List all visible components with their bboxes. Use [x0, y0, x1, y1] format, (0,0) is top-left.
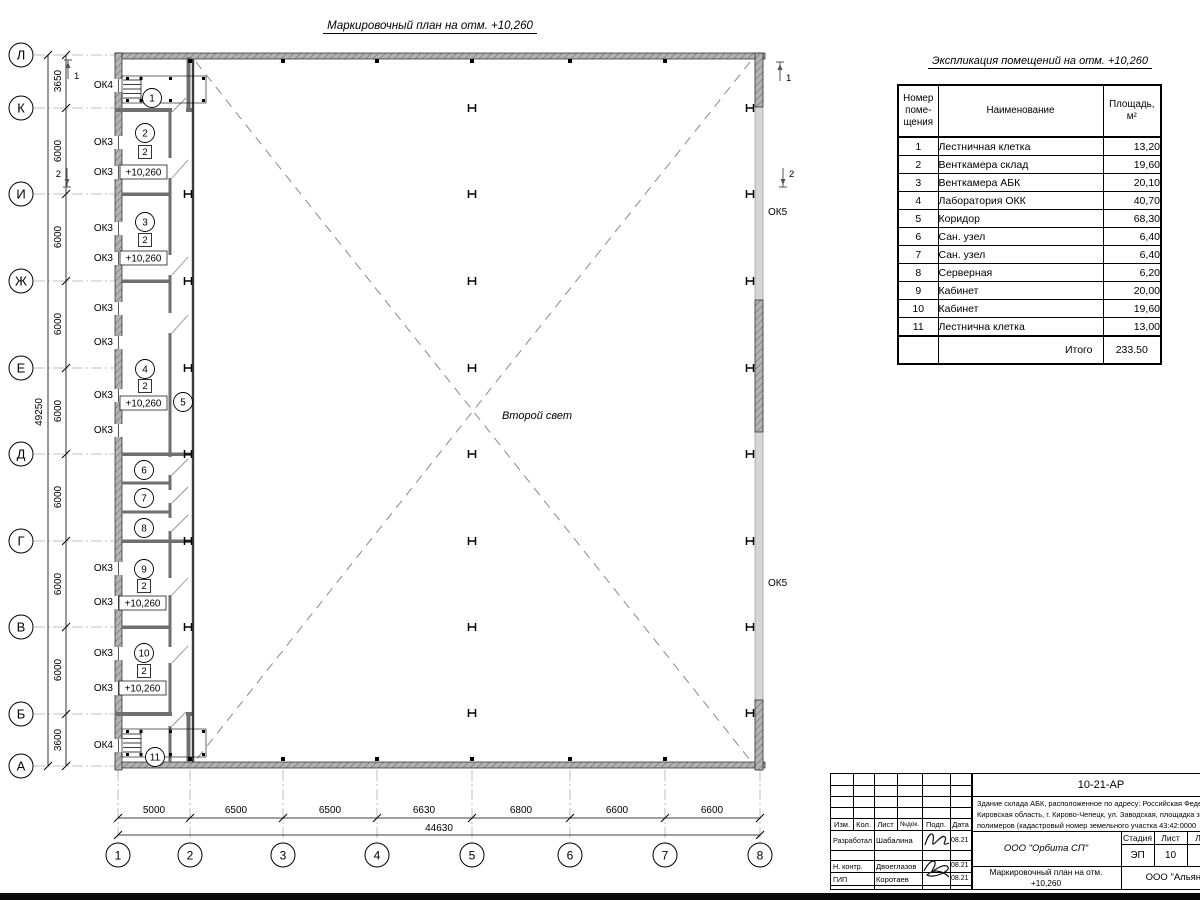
room-number: 11 [150, 753, 161, 764]
col-header-number: Номер поме- щения [898, 85, 938, 137]
room-area: 19,60 [1103, 300, 1161, 318]
tb-role-name: Двоеглазов [876, 862, 921, 871]
axis-row-label: В [17, 620, 26, 635]
elevation-mark: +10,260 [125, 599, 161, 610]
table-row: 3Венткамера АБК20,10 [898, 174, 1161, 192]
tb-role-date: 08.21 [951, 837, 971, 844]
window-mark: ОК3 [94, 253, 114, 264]
axis-col-label: 7 [662, 849, 669, 863]
room-num: 1 [898, 137, 938, 156]
dim-label: 6000 [53, 572, 64, 595]
category-mark: 2 [142, 147, 147, 158]
window-mark: ОК3 [94, 167, 114, 178]
dim-total-label: 49250 [34, 398, 45, 426]
dim-label: 6000 [53, 485, 64, 508]
title-block-line [831, 885, 971, 886]
window-mark: ОК3 [94, 563, 114, 574]
axis-row-label: Л [17, 48, 26, 63]
dim-label: 6630 [413, 805, 436, 816]
tb-role-date: 08.21 [951, 875, 971, 882]
room-num: 2 [898, 156, 938, 174]
axis-col-label: 4 [374, 849, 381, 863]
room-area: 6,40 [1103, 228, 1161, 246]
category-mark: 2 [141, 666, 146, 677]
axis-col-label: 3 [280, 849, 287, 863]
second-light-cross [196, 62, 750, 760]
window-mark: ОК3 [94, 137, 114, 148]
door-swings [172, 98, 188, 726]
axis-row-label: Г [17, 534, 24, 549]
room-number: 3 [142, 218, 148, 229]
window-mark: ОК3 [94, 223, 114, 234]
dim-label: 6500 [319, 805, 342, 816]
tb-sheets-value: 1 [1187, 844, 1200, 866]
tb-role: Разработал [833, 836, 873, 845]
table-total-row: Итого 233.50 [898, 336, 1161, 364]
room-name: Венткамера склад [938, 156, 1103, 174]
window-mark: ОК5 [768, 207, 788, 218]
room-area: 6,40 [1103, 246, 1161, 264]
floor-plan: Л К И Ж Е Д Г В Б А 1 2 3 4 5 6 7 8 3650… [0, 0, 840, 900]
dim-label: 6000 [53, 139, 64, 162]
dim-label: 6600 [701, 805, 724, 816]
tb-role: Н. контр. [833, 862, 873, 871]
room-name: Лаборатория ОКК [938, 192, 1103, 210]
room-name: Коридор [938, 210, 1103, 228]
room-area: 20,00 [1103, 282, 1161, 300]
window-mark: ОК3 [94, 337, 114, 348]
section-label: 2 [789, 169, 794, 180]
tb-doc-code: 10-21-АР [971, 774, 1200, 796]
col-header-area: Площадь, м² [1103, 85, 1161, 137]
axis-row-label: К [17, 101, 25, 116]
sheet-frame-bottom [0, 893, 1200, 900]
room-name: Венткамера АБК [938, 174, 1103, 192]
dim-label: 6000 [53, 225, 64, 248]
dimension-labels: 3650 6000 6000 6000 6000 6000 6000 6000 … [34, 69, 724, 834]
tb-stage-value: ЭП [1121, 844, 1154, 866]
axis-row-label: А [17, 759, 26, 774]
table-row: 2Венткамера склад19,60 [898, 156, 1161, 174]
tb-stage-label: Стадия [1121, 831, 1154, 844]
tb-role-name: Коротаев [876, 875, 921, 884]
window-marks: ОК4 ОК3 ОК3 ОК3 ОК3 ОК3 ОК3 ОК3 ОК3 ОК3 … [94, 80, 788, 751]
room-area: 20,10 [1103, 174, 1161, 192]
title-block-line [831, 785, 971, 786]
room-area: 19,60 [1103, 156, 1161, 174]
section-label: 1 [74, 71, 79, 82]
elevation-mark: +10,260 [126, 399, 162, 410]
tb-company: ООО "Орбита СП" [971, 831, 1121, 866]
room-number: 10 [138, 649, 150, 660]
explication-title: Экспликация помещений на отм. +10,260 [915, 55, 1165, 67]
tb-col-izm: Изм. [831, 818, 853, 830]
tb-doc-name-line: +10,260 [971, 878, 1121, 889]
axis-col-label: 2 [187, 849, 194, 863]
axis-col-label: 6 [567, 849, 574, 863]
axis-row-label: Д [17, 447, 26, 462]
window-mark: ОК3 [94, 683, 114, 694]
table-row: 1Лестничная клетка13,20 [898, 137, 1161, 156]
elevation-mark: +10,260 [126, 254, 162, 265]
table-row: 7Сан. узел6,40 [898, 246, 1161, 264]
explication-table: Номер поме- щения Наименование Площадь, … [897, 84, 1162, 365]
axis-col-label: 1 [115, 849, 122, 863]
title-block-line [831, 796, 971, 797]
table-row: 9Кабинет20,00 [898, 282, 1161, 300]
room-number: 2 [142, 129, 148, 140]
room-number: 8 [141, 524, 147, 535]
window-mark: ОК3 [94, 597, 114, 608]
elevation-mark: +10,260 [126, 168, 162, 179]
room-number: 1 [149, 94, 155, 105]
axis-col-label: 5 [469, 849, 476, 863]
room-area: 13,00 [1103, 318, 1161, 337]
total-value: 233.50 [1103, 336, 1161, 364]
window-mark: ОК3 [94, 303, 114, 314]
table-row: 11Лестнична клетка13,00 [898, 318, 1161, 337]
total-label: Итого [938, 336, 1103, 364]
signature-icon [921, 827, 953, 885]
tb-description: Здание склада АБК, расположенное по адре… [977, 798, 1200, 831]
table-row: 8Серверная6,20 [898, 264, 1161, 282]
window-mark: ОК3 [94, 648, 114, 659]
row-axis-bubbles: Л К И Ж Е Д Г В Б А [9, 43, 33, 778]
dim-label: 6600 [606, 805, 629, 816]
table-row: 5Коридор68,30 [898, 210, 1161, 228]
tb-sheet-value: 10 [1154, 844, 1187, 866]
room-num: 3 [898, 174, 938, 192]
room-num: 6 [898, 228, 938, 246]
second-light-label: Второй свет [502, 410, 572, 422]
room-name: Сан. узел [938, 228, 1103, 246]
category-mark: 2 [142, 235, 147, 246]
window-mark: ОК3 [94, 390, 114, 401]
tb-col-ndoc: №док. [897, 818, 922, 830]
tb-sheets-label: Листов [1187, 831, 1200, 844]
tb-doc-name-line: Маркировочный план на отм. [971, 867, 1121, 878]
room-name: Лестнична клетка [938, 318, 1103, 337]
column-symbols [185, 59, 754, 761]
dim-label: 3600 [53, 728, 64, 751]
tb-col-kol: Кол. [853, 818, 874, 830]
room-name: Сан. узел [938, 246, 1103, 264]
col-header-name: Наименование [938, 85, 1103, 137]
room-area: 6,20 [1103, 264, 1161, 282]
dim-label: 6000 [53, 312, 64, 335]
title-block-line [831, 807, 971, 808]
section-label: 1 [786, 73, 791, 84]
axis-row-label: Б [17, 707, 26, 722]
tb-description-line: Кировская область, г. Кирово-Чепецк, ул.… [977, 809, 1200, 820]
tb-doc-name: Маркировочный план на отм. +10,260 [971, 866, 1121, 890]
window-mark: ОК4 [94, 740, 114, 751]
window-mark: ОК3 [94, 425, 114, 436]
tb-description-line: полимеров (кадастровый номер земельного … [977, 820, 1200, 831]
dim-label: 3650 [53, 69, 64, 92]
room-area: 68,30 [1103, 210, 1161, 228]
table-row: 6Сан. узел6,40 [898, 228, 1161, 246]
dim-total-label: 44630 [425, 823, 453, 834]
room-num: 11 [898, 318, 938, 337]
room-number: 9 [141, 565, 147, 576]
tb-sheet-label: Лист [1154, 831, 1187, 844]
elevation-mark: +10,260 [125, 684, 161, 695]
room-name: Кабинет [938, 282, 1103, 300]
section-label: 2 [56, 169, 61, 180]
room-num: 4 [898, 192, 938, 210]
room-num: 9 [898, 282, 938, 300]
axis-row-label: Е [17, 361, 26, 376]
tb-company2: ООО "Альяно [1121, 866, 1200, 889]
room-num: 5 [898, 210, 938, 228]
room-area: 13,20 [1103, 137, 1161, 156]
room-area: 40,70 [1103, 192, 1161, 210]
room-name: Кабинет [938, 300, 1103, 318]
room-num: 7 [898, 246, 938, 264]
room-num: 10 [898, 300, 938, 318]
tb-description-line: Здание склада АБК, расположенное по адре… [977, 798, 1200, 809]
room-num: 8 [898, 264, 938, 282]
axis-col-label: 8 [757, 849, 764, 863]
table-row: 10Кабинет19,60 [898, 300, 1161, 318]
exterior-walls [115, 53, 765, 770]
table-row: 4Лаборатория ОКК40,70 [898, 192, 1161, 210]
tb-role-name: Шабалина [876, 836, 921, 845]
title-block-line [971, 796, 1200, 797]
room-number: 6 [141, 466, 147, 477]
axis-row-label: И [16, 187, 25, 202]
room-name: Серверная [938, 264, 1103, 282]
dim-label: 6000 [53, 399, 64, 422]
dim-label: 6000 [53, 658, 64, 681]
window-mark: ОК5 [768, 578, 788, 589]
room-number: 5 [180, 398, 186, 409]
tb-role: ГИП [833, 875, 873, 884]
dim-label: 6800 [510, 805, 533, 816]
category-mark: 2 [142, 381, 147, 392]
room-name: Лестничная клетка [938, 137, 1103, 156]
table-header-row: Номер поме- щения Наименование Площадь, … [898, 85, 1161, 137]
tb-col-list: Лист [874, 818, 897, 830]
axis-row-label: Ж [15, 274, 27, 289]
room-number: 7 [141, 494, 147, 505]
dim-label: 6500 [225, 805, 248, 816]
col-axis-bubbles: 1 2 3 4 5 6 7 8 [106, 843, 772, 867]
window-mark: ОК4 [94, 80, 114, 91]
room-number: 4 [142, 365, 148, 376]
category-mark: 2 [141, 581, 146, 592]
title-block: Изм. Кол. Лист №док. Подп. Дата Разработ… [830, 773, 1200, 890]
tb-col-data: Дата [950, 818, 971, 830]
drawing-sheet: { "plan_title": "Маркировочный план на о… [0, 0, 1200, 900]
total-empty-cell [898, 336, 938, 364]
dim-label: 5000 [143, 805, 166, 816]
tb-role-date: 08.21 [951, 862, 971, 869]
